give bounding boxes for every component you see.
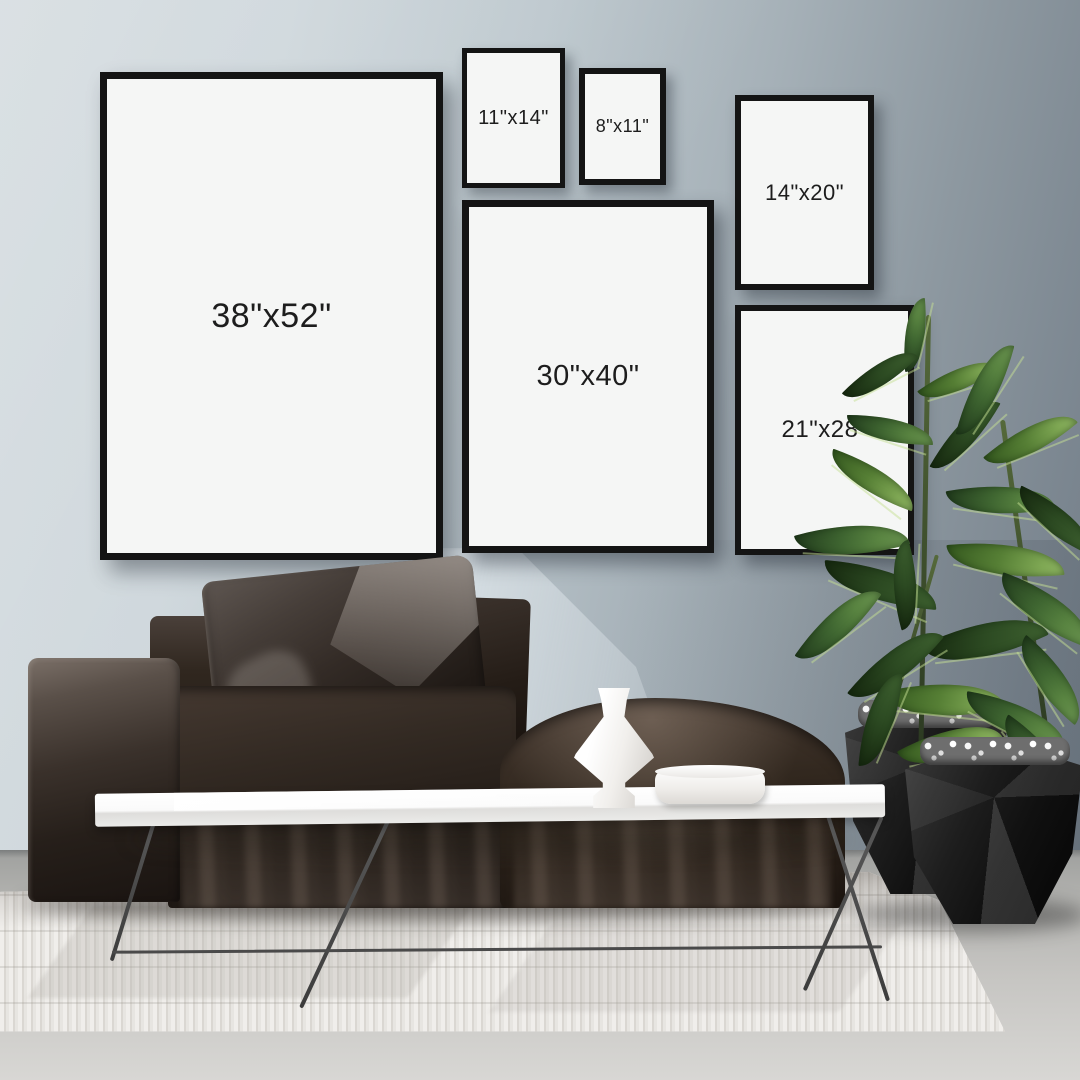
planter-pebbles-front	[920, 737, 1070, 765]
table-shadow	[130, 826, 850, 852]
frame-38x52: 38"x52"	[100, 72, 443, 560]
white-bowl	[655, 770, 765, 804]
living-room-mockup: 38"x52" 11"x14" 8"x11" 14"x20" 30"x40" 2…	[0, 0, 1080, 1080]
rug-pattern	[489, 924, 901, 1012]
frame-size-label: 8"x11"	[596, 116, 649, 137]
frame-size-label: 11"x14"	[478, 107, 549, 130]
frame-30x40: 30"x40"	[462, 200, 714, 553]
sunlight-patch	[308, 554, 487, 704]
frame-size-label: 30"x40"	[536, 360, 639, 393]
sofa-armrest	[28, 658, 180, 902]
frame-size-label: 14"x20"	[765, 180, 844, 206]
frame-size-label: 38"x52"	[211, 297, 331, 336]
frame-14x20: 14"x20"	[735, 95, 874, 290]
table-sheen	[174, 788, 609, 811]
frame-11x14: 11"x14"	[462, 48, 565, 188]
bowl-rim	[655, 765, 765, 778]
frame-8x11: 8"x11"	[579, 68, 666, 185]
